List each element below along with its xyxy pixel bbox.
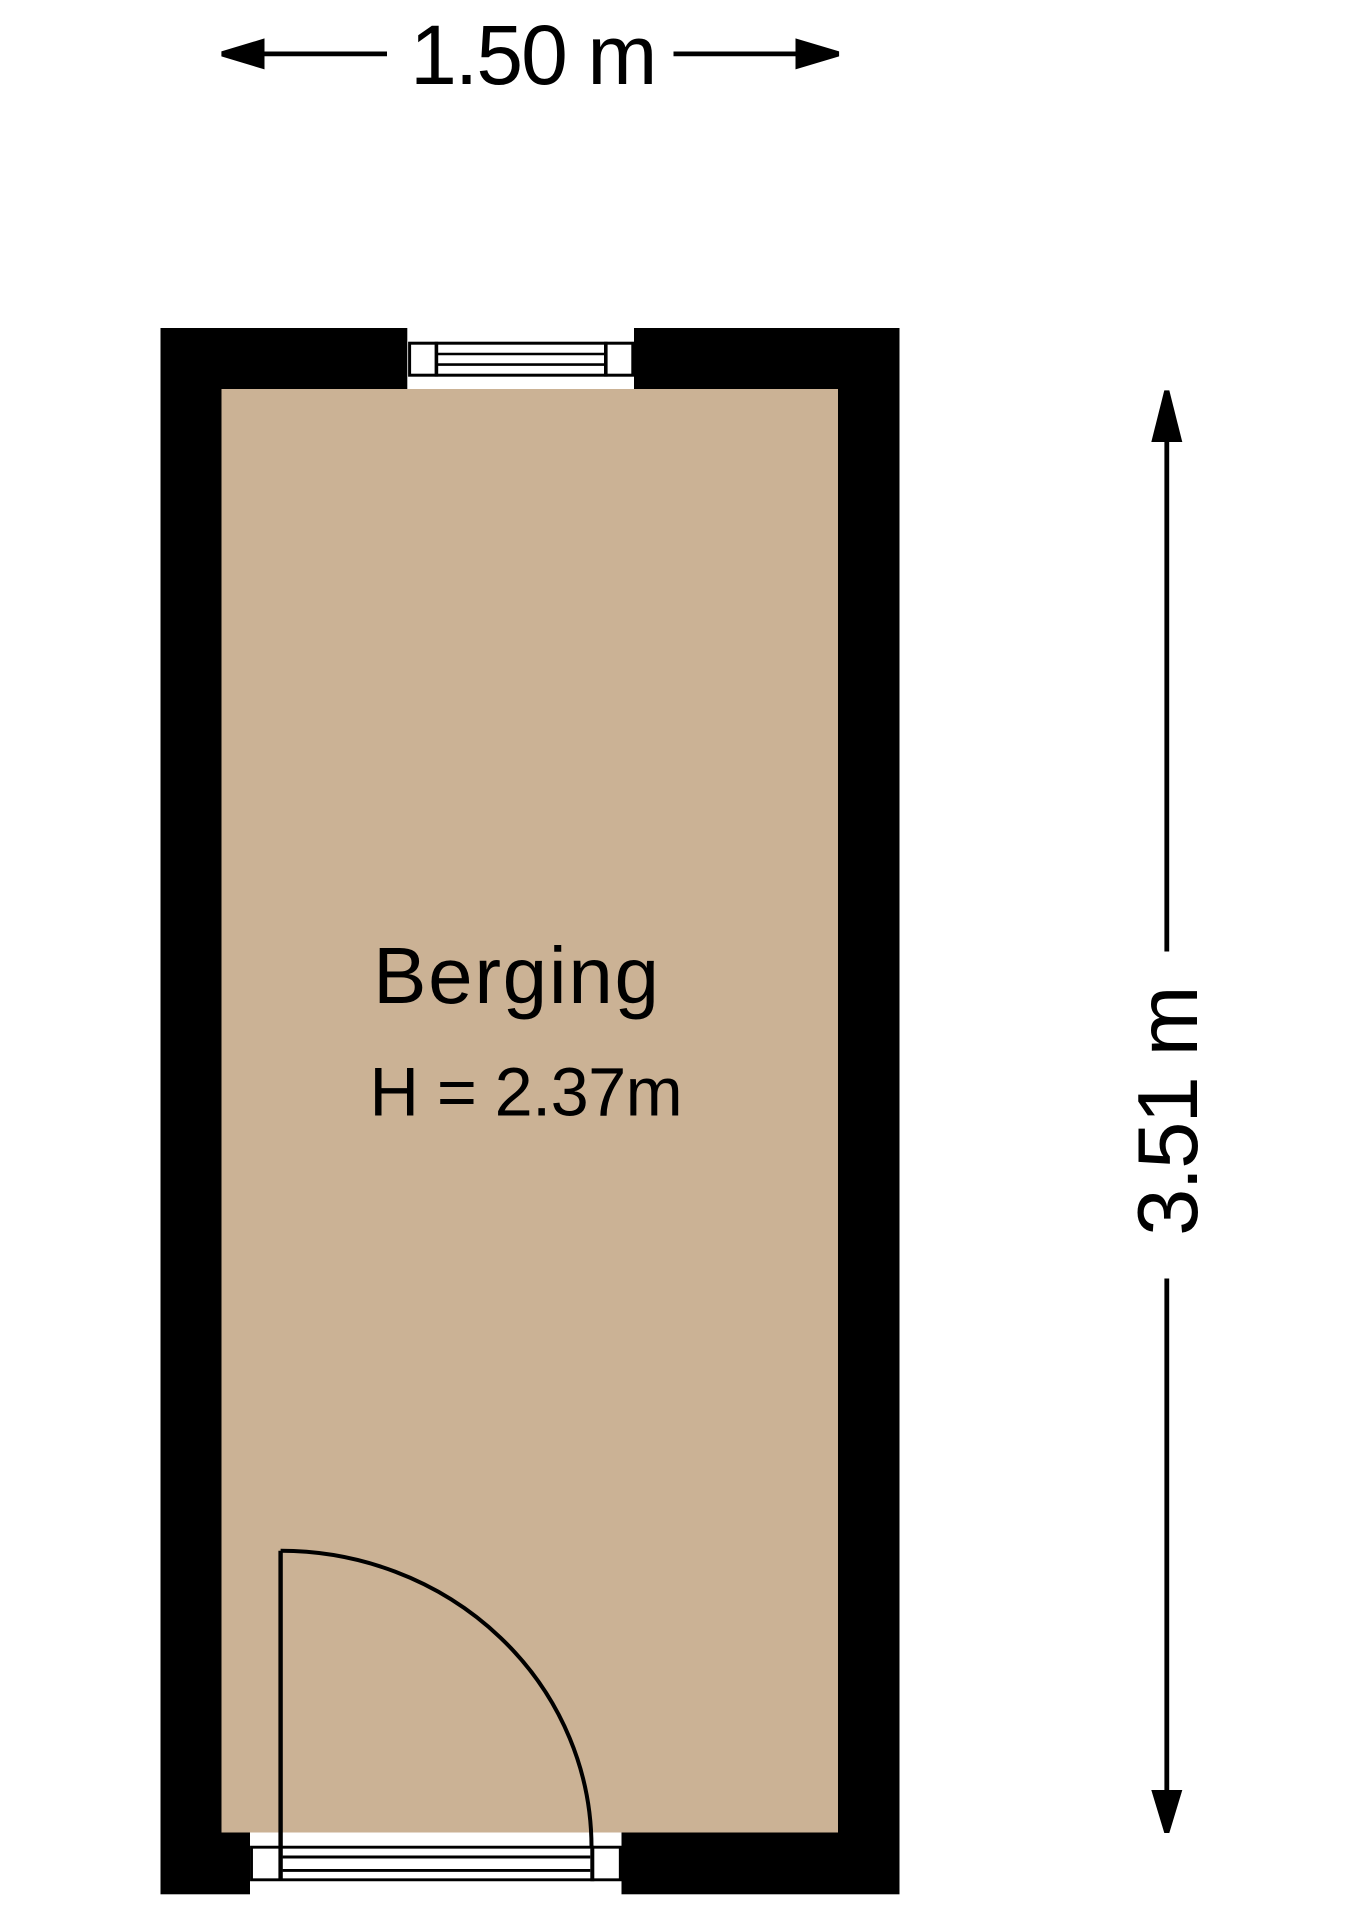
svg-text:Berging: Berging xyxy=(373,931,661,1020)
svg-text:3.51 m: 3.51 m xyxy=(1121,987,1216,1235)
svg-text:H = 2.37m: H = 2.37m xyxy=(370,1054,683,1131)
svg-text:1.50 m: 1.50 m xyxy=(410,8,655,102)
